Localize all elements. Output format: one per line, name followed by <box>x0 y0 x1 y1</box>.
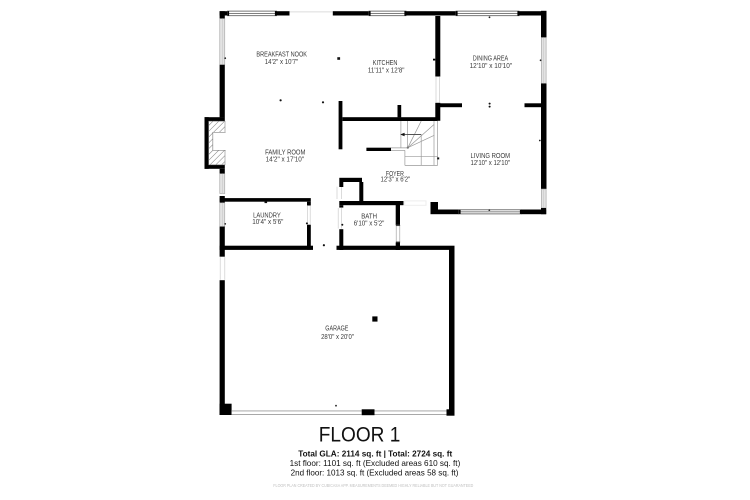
svg-text:GARAGE: GARAGE <box>325 325 348 332</box>
svg-text:28'0" x 20'0": 28'0" x 20'0" <box>321 334 354 341</box>
svg-text:14'2" x 10'7": 14'2" x 10'7" <box>265 59 299 66</box>
svg-text:LIVING ROOM: LIVING ROOM <box>471 153 511 160</box>
svg-text:12'3" x 6'2": 12'3" x 6'2" <box>381 176 411 183</box>
svg-text:2nd floor: 1013 sq. ft (Exclud: 2nd floor: 1013 sq. ft (Excluded areas 5… <box>291 468 459 478</box>
svg-text:FLOOR 1: FLOOR 1 <box>319 422 401 447</box>
svg-text:11'11" x 12'8": 11'11" x 12'8" <box>368 67 405 74</box>
svg-text:1st floor: 1101 sq. ft (Exclud: 1st floor: 1101 sq. ft (Excluded areas 6… <box>290 458 461 468</box>
svg-text:FLOOR PLAN CREATED BY CUBICASA: FLOOR PLAN CREATED BY CUBICASA APP. MEAS… <box>273 483 473 488</box>
svg-text:14'2" x 17'10": 14'2" x 17'10" <box>266 156 305 163</box>
svg-text:12'10" x 10'10": 12'10" x 10'10" <box>470 63 513 70</box>
svg-text:12'10" x 12'10": 12'10" x 12'10" <box>471 160 511 167</box>
svg-text:10'4" x 5'6": 10'4" x 5'6" <box>252 219 284 226</box>
svg-text:6'10" x 5'2": 6'10" x 5'2" <box>354 220 385 227</box>
svg-text:DINING AREA: DINING AREA <box>473 56 509 63</box>
svg-text:Total GLA: 2114 sq. ft | Total: Total GLA: 2114 sq. ft | Total: 2724 sq.… <box>298 448 452 458</box>
svg-text:BREAKFAST NOOK: BREAKFAST NOOK <box>256 51 307 58</box>
svg-text:KITCHEN: KITCHEN <box>373 60 398 67</box>
